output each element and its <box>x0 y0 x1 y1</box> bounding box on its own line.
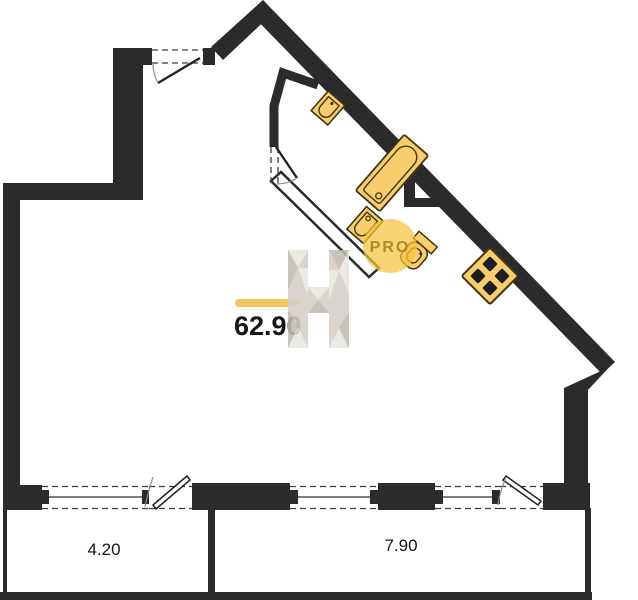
balcony-right-label: 7.90 <box>384 536 417 555</box>
balcony-right-wall <box>585 508 591 596</box>
pro-badge-text: PRO <box>370 239 411 256</box>
pier-right-corner <box>543 483 590 510</box>
balcony-divider-wall <box>208 508 215 596</box>
balcony-left-wall <box>3 508 7 596</box>
wall-step-horizontal <box>3 183 143 200</box>
balcony-left-label: 4.20 <box>87 540 120 559</box>
window-1 <box>42 487 149 509</box>
bath-partition-horizontal <box>404 198 448 207</box>
wall-top-door-left <box>113 48 152 65</box>
watermark-h-logo <box>288 250 349 348</box>
wall-top-door-jamb <box>203 48 215 65</box>
wall-bottom <box>0 592 592 600</box>
window-3 <box>435 487 500 509</box>
watermark-pro-badge: PRO <box>363 219 417 273</box>
entrance-door <box>152 50 203 83</box>
floor-plan-svg: 62.90 4.20 7.90 PRO <box>0 0 638 600</box>
pier-left-corner <box>3 485 42 510</box>
pier-middle-left <box>192 483 290 510</box>
wall-topleft-vertical <box>113 48 143 200</box>
floor-plan: 62.90 4.20 7.90 PRO <box>0 0 638 600</box>
balcony-door-left <box>145 476 192 509</box>
balcony-door-right <box>498 476 543 509</box>
wall-left <box>3 183 20 487</box>
window-2 <box>290 487 378 509</box>
wall-right-chevron <box>564 361 615 487</box>
pier-middle-right <box>378 483 435 510</box>
